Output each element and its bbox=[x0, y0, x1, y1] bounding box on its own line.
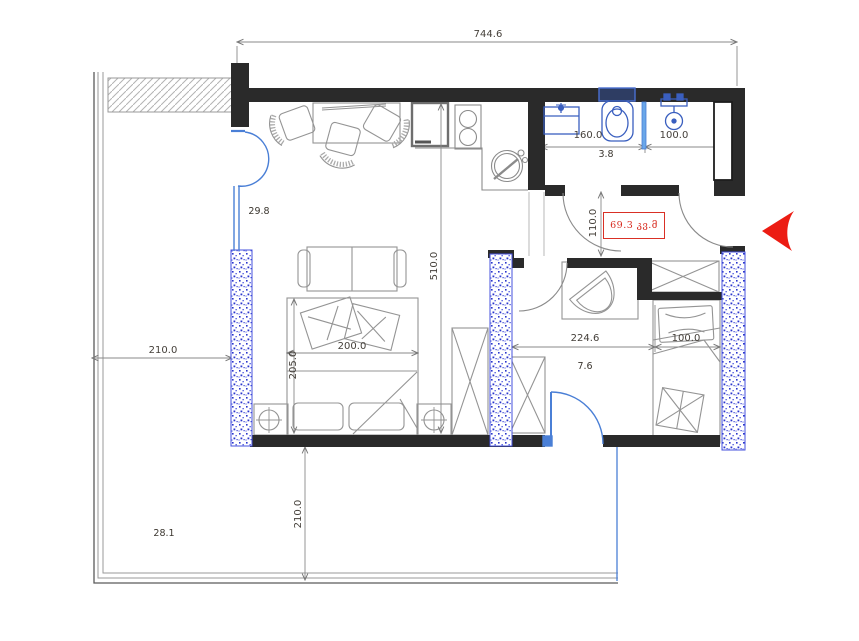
dim-terrace-depth: 210.0 bbox=[293, 494, 305, 534]
kids-bed bbox=[653, 300, 720, 443]
wardrobe-kids-top bbox=[647, 261, 719, 292]
total-area-label: 69.3 კვ.მ bbox=[610, 220, 658, 231]
shaft bbox=[714, 102, 732, 180]
chair-icon bbox=[570, 271, 625, 324]
shower-glass-partition bbox=[642, 102, 646, 149]
wardrobe-master bbox=[452, 328, 488, 435]
dim-overall-width: 744.6 bbox=[453, 29, 523, 41]
fridge-icon bbox=[412, 103, 448, 146]
dimension-lines bbox=[92, 42, 737, 580]
balcony-door-arc bbox=[238, 132, 269, 186]
dim-kids-room-width: 224.6 bbox=[560, 333, 610, 345]
nightstand-right bbox=[417, 404, 451, 435]
kids-inner-door-arc bbox=[519, 263, 567, 311]
dim-bed-width: 200.0 bbox=[327, 341, 377, 353]
total-area-box: 69.3 კვ.მ bbox=[603, 212, 665, 239]
floor-plan-drawing bbox=[0, 0, 859, 641]
dim-bed-length: 205.0 bbox=[288, 345, 300, 385]
area-label-living: 29.8 bbox=[234, 206, 284, 218]
dining-set bbox=[266, 102, 414, 172]
column bbox=[722, 252, 745, 450]
kitchen bbox=[412, 103, 528, 190]
toilet-cistern-icon bbox=[599, 88, 635, 101]
kitchen-sink-icon bbox=[492, 150, 528, 182]
floor-plan: 744.6 160.0 100.0 3.8 110.0 510.0 29.8 2… bbox=[0, 0, 859, 641]
dim-shower-width: 100.0 bbox=[651, 130, 697, 142]
room-boundaries bbox=[529, 192, 544, 256]
desk-chair bbox=[562, 262, 638, 324]
shower-fixture-icon bbox=[661, 94, 687, 130]
dim-terrace-width: 210.0 bbox=[138, 345, 188, 357]
area-label-kids-room: 7.6 bbox=[570, 361, 600, 373]
entrance-door-arc bbox=[679, 193, 733, 247]
area-label-bathroom: 3.8 bbox=[591, 149, 621, 161]
nightstand-left bbox=[254, 404, 288, 435]
area-label-terrace: 28.1 bbox=[139, 528, 189, 540]
dim-apartment-depth: 510.0 bbox=[429, 246, 441, 286]
dim-kids-bed-width: 100.0 bbox=[661, 333, 711, 345]
column bbox=[490, 254, 512, 446]
desk bbox=[562, 262, 638, 319]
wardrobe-kids-left bbox=[510, 357, 545, 433]
column bbox=[231, 250, 252, 446]
kids-door-arc bbox=[551, 392, 603, 444]
dim-hall-opening: 110.0 bbox=[588, 203, 600, 243]
entrance-arrow-icon bbox=[762, 211, 794, 251]
hatched-wall bbox=[108, 78, 233, 112]
dim-bathroom-width: 160.0 bbox=[565, 130, 611, 142]
